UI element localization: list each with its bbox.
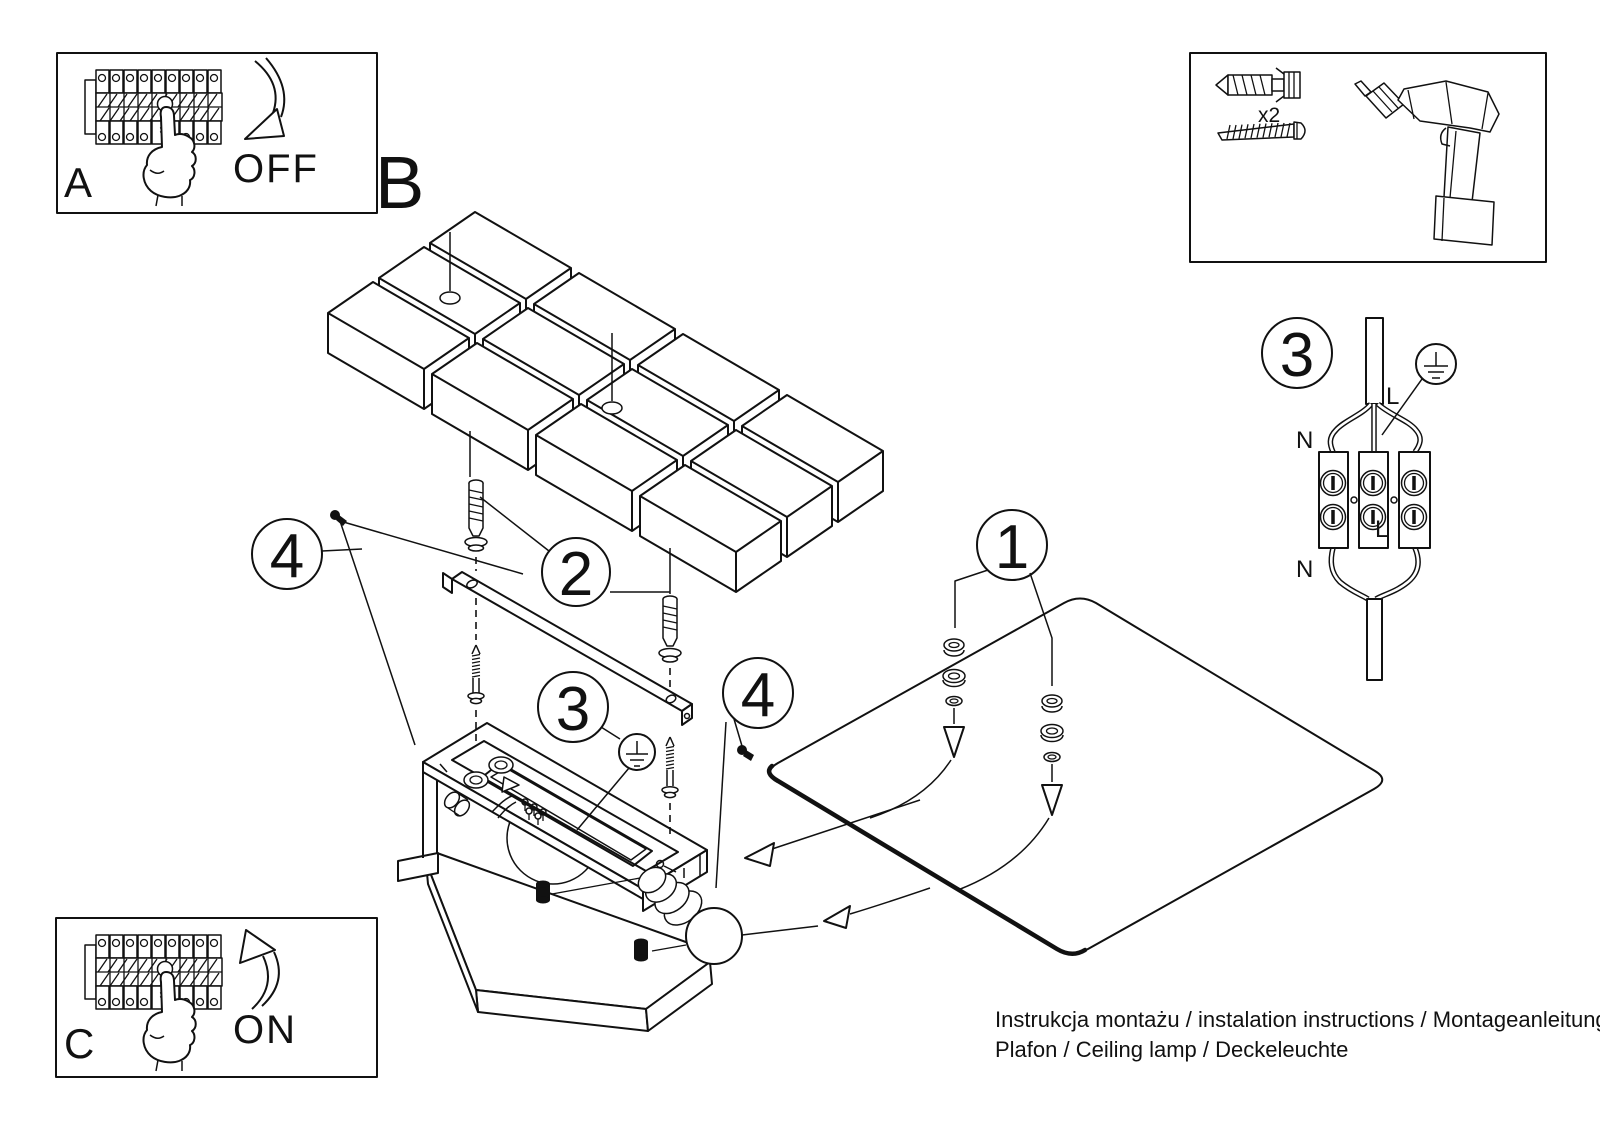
- callout-digit: 4: [741, 661, 775, 730]
- instruction-sheet: A OFF C ON x2: [0, 0, 1600, 1131]
- machine-screw: [468, 645, 484, 704]
- small-screw-icon: [737, 745, 754, 761]
- footer: Instrukcja montażu / instalation instruc…: [995, 1007, 1600, 1062]
- arrow-head-icon: [745, 843, 774, 866]
- diffuser-panel: [769, 599, 1382, 954]
- power-off-inset: A OFF: [57, 53, 377, 213]
- wiring-detail: 3: [1262, 318, 1456, 680]
- ground-symbol-icon: [1416, 344, 1456, 384]
- ceiling-grid: [328, 212, 883, 592]
- arrow-head-icon: [824, 906, 850, 928]
- off-caption: OFF: [233, 147, 319, 191]
- footer-title: Instrukcja montażu / instalation instruc…: [995, 1007, 1600, 1032]
- lamp-body: [398, 723, 742, 1031]
- tools-inset: x2: [1190, 53, 1546, 262]
- callout-digit: 1: [995, 513, 1029, 582]
- inset-c-label: C: [64, 1020, 94, 1067]
- live-label-bottom: L: [1375, 516, 1388, 543]
- mains-cable-bottom: [1367, 599, 1382, 680]
- light-bulb: [686, 908, 742, 964]
- on-caption: ON: [233, 1008, 297, 1052]
- neutral-label-top: N: [1296, 427, 1313, 454]
- live-label-top: L: [1386, 383, 1399, 410]
- ground-symbol-icon: [619, 734, 655, 770]
- callout-digit: 2: [559, 540, 593, 609]
- wires-bottom: [1331, 548, 1418, 599]
- neutral-label-bottom: N: [1296, 556, 1313, 583]
- wall-plug-with-screw: [465, 480, 487, 551]
- footer-subtitle: Plafon / Ceiling lamp / Deckeleuchte: [995, 1037, 1348, 1062]
- inset-a-label: A: [64, 159, 92, 206]
- anchor-quantity: x2: [1258, 104, 1280, 127]
- wiring-callout-digit: 3: [1280, 321, 1314, 390]
- machine-screw: [662, 737, 678, 798]
- assembly-label: B: [375, 141, 424, 224]
- mains-cable-top: [1366, 318, 1383, 404]
- power-on-inset: C ON: [56, 918, 377, 1077]
- callout-digit: 3: [556, 675, 590, 744]
- callout-digit: 4: [270, 522, 304, 591]
- wall-plug-with-screw: [659, 596, 681, 662]
- small-screw-icon: [330, 510, 347, 526]
- wires-top: [1330, 404, 1420, 452]
